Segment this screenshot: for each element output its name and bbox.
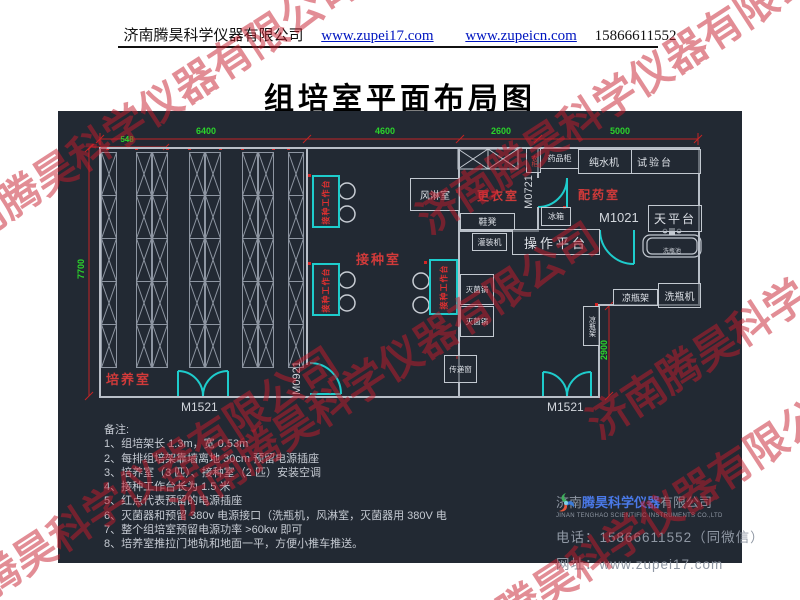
footer-phone: 电话：15866611552（同微信） — [556, 526, 765, 546]
note-line: 8、培养室推拉门地轨和地面一平，方便小推车推送。 — [104, 537, 447, 551]
note-line: 2、每排组培架靠墙离地 30cm 预留电源插座 — [104, 452, 447, 466]
medicine-cabinet-box: 药品柜 — [540, 148, 579, 169]
note-line: 7、整个组培室预留电源功率 >60kw 即可 — [104, 523, 447, 537]
air-shower-box: 风淋室 — [410, 178, 460, 211]
room-label-dispensing: 配药室 — [578, 186, 620, 203]
footer-company-block: 济南腾昊科学仪器有限公司 JINAN TENGHAO SCIENTIFIC IN… — [556, 492, 765, 573]
dim-548: 548 — [112, 135, 142, 144]
door-label-m1021: M1021 — [599, 210, 639, 225]
transfer-window-box: 传递窗 — [444, 355, 477, 383]
workbench-label-2: 接种工作台 — [321, 267, 332, 312]
wardrobe-box: 衣柜 — [526, 148, 541, 173]
workbench-label-1: 接种工作台 — [321, 179, 332, 224]
sterilizer-box-1: 灭菌锅 — [460, 274, 494, 305]
room-label-culture: 培养室 — [106, 369, 151, 388]
culture-rack-group — [102, 153, 304, 368]
bottle-rack-box: 凉瓶架 — [613, 289, 658, 306]
counter-divider — [631, 150, 632, 173]
dim-4600: 4600 — [365, 126, 405, 136]
notes-title: 备注: — [104, 423, 447, 437]
door-m0721-arc — [538, 178, 567, 207]
door-label-m0721: M0721 — [523, 167, 535, 217]
note-line: 5、红点代表预留的电源插座 — [104, 494, 447, 508]
sink-label: 洗瓶池 — [663, 246, 681, 255]
inoculation-workbench-3: 接种工作台 — [429, 259, 458, 315]
company-logo — [556, 492, 576, 514]
dim-7700: 7700 — [76, 249, 86, 289]
bottle-rack-vertical-box: 凉瓶架 — [583, 306, 600, 346]
inoculation-workbench-2: 接种工作台 — [312, 263, 340, 316]
footer-company-name: 济南腾昊科学仪器有限公司 — [556, 492, 712, 511]
wall-bottom — [99, 396, 600, 398]
door-label-m1521-right: M1521 — [547, 400, 584, 414]
bottle-washer-box: 洗瓶机 — [658, 283, 701, 308]
dim-6400: 6400 — [186, 126, 226, 136]
footer-company-en: JINAN TENGHAO SCIENTIFIC INSTRUMENTS CO.… — [556, 513, 765, 519]
footer-site: 网址：www.zupei17.com — [556, 553, 765, 573]
balance-table-box: 天平台 — [648, 205, 702, 232]
page: 济南腾昊科学仪器有限公司 www.zupei17.com www.zupeicn… — [0, 0, 800, 600]
bench-counter-box: 纯水机 试验台 — [578, 149, 701, 174]
room-label-inoculation: 接种室 — [356, 249, 401, 268]
inoculation-workbench-1: 接种工作台 — [312, 175, 340, 228]
note-line: 3、培养室（3 匹）、接种室（2 匹）安装空调 — [104, 466, 447, 480]
door-m0921-arc — [310, 363, 341, 394]
dim-2600: 2600 — [481, 126, 521, 136]
door-m1021-arc — [600, 230, 634, 264]
wall-left — [99, 147, 101, 398]
shoe-bench-box: 鞋凳 — [460, 213, 515, 230]
workbench-label-3: 接种工作台 — [438, 265, 449, 310]
locker-hatch-box — [458, 149, 518, 169]
operating-platform-box: 操作平台 — [512, 229, 600, 255]
room-label-changing: 更衣室 — [477, 187, 519, 204]
dim-2900: 2900 — [599, 330, 609, 370]
note-line: 1、组培架长 1.3m，宽 0.53m — [104, 437, 447, 451]
notes-block: 备注: 1、组培架长 1.3m，宽 0.53m 2、每排组培架靠墙离地 30cm… — [104, 423, 447, 552]
note-line: 6、灭菌器和预留 380v 电源接口（洗瓶机，风淋室，灭菌器用 380V 电 — [104, 509, 447, 523]
sterilizer-box-2: 灭菌锅 — [460, 306, 494, 337]
door-m1521-right-arc — [543, 372, 591, 396]
water-purifier-label: 纯水机 — [589, 154, 619, 169]
door-m1521-left-arc — [178, 371, 228, 396]
door-label-m1521-left: M1521 — [181, 400, 218, 414]
dim-5000: 5000 — [600, 126, 640, 136]
wall-culture-divider — [306, 147, 308, 365]
filling-machine-box: 灌装机 — [472, 233, 507, 251]
note-line: 4、接种工作台长为 1.5 米 — [104, 480, 447, 494]
test-bench-label: 试验台 — [637, 154, 673, 169]
fridge-box: 冰箱 — [541, 207, 571, 226]
door-label-m0921: M0921 — [291, 353, 303, 403]
